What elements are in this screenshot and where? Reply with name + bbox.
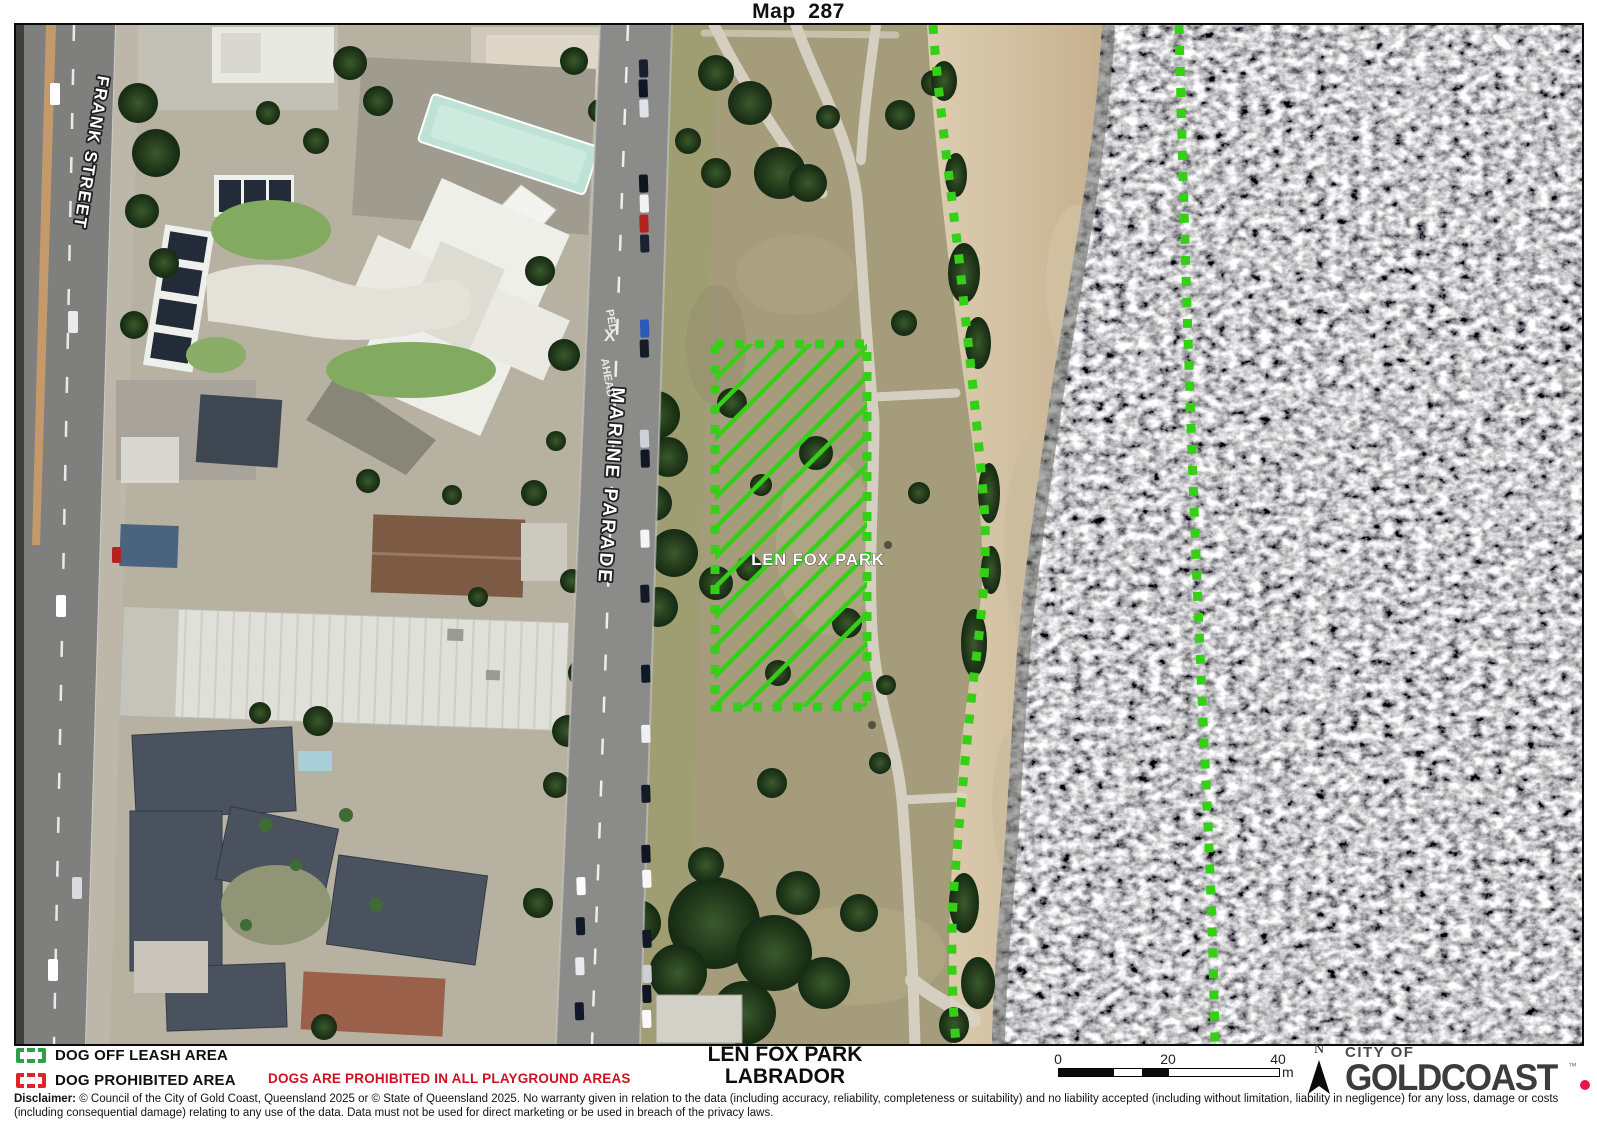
disclaimer: Disclaimer: © Council of the City of Gol… [14, 1092, 1586, 1120]
scale-tick: 20 [1160, 1051, 1176, 1067]
legend: DOG OFF LEASH AREA DOG PROHIBITED AREA [16, 1045, 236, 1090]
logo-red-dot-icon [1580, 1080, 1590, 1090]
legend-item-prohibited: DOG PROHIBITED AREA [16, 1070, 236, 1090]
scale-unit: m [1282, 1064, 1294, 1080]
suburb-name: LABRADOR [600, 1066, 970, 1088]
aerial-map: FRANK STREET MARINE PARADE PED X AHEAD L… [16, 25, 1582, 1044]
park-name: LEN FOX PARK [600, 1044, 970, 1066]
dog-prohibited-swatch-icon [16, 1073, 46, 1088]
logo-trademark: ™ [1568, 1061, 1577, 1071]
scale-bar: 0 20 40 m [1044, 1051, 1294, 1085]
legend-label: DOG PROHIBITED AREA [55, 1072, 236, 1089]
north-label: N [1302, 1042, 1336, 1058]
map-canvas: FRANK STREET MARINE PARADE PED X AHEAD L… [14, 23, 1584, 1046]
legend-item-off-leash: DOG OFF LEASH AREA [16, 1045, 236, 1065]
playground-warning-text: DOGS ARE PROHIBITED IN ALL PLAYGROUND AR… [268, 1071, 631, 1086]
logo-goldcoast: GOLDCOAST [1345, 1061, 1557, 1095]
page-title: Map 287 [0, 0, 1597, 24]
city-of-goldcoast-logo: CITY OF GOLDCOAST™ [1345, 1044, 1595, 1095]
north-arrow-icon [1305, 1058, 1333, 1096]
map-sheet-title: LEN FOX PARK LABRADOR [600, 1044, 970, 1088]
disclaimer-label: Disclaimer: [14, 1093, 76, 1105]
len-fox-park-map-label: LEN FOX PARK [751, 551, 885, 569]
road-marking-x: X [604, 326, 616, 345]
scale-bar-segments [1058, 1068, 1280, 1077]
dog-off-leash-swatch-icon [16, 1048, 46, 1063]
legend-label: DOG OFF LEASH AREA [55, 1047, 228, 1064]
offleash-hatched-area [715, 344, 867, 707]
scale-tick: 0 [1054, 1051, 1062, 1067]
park-shelter [656, 995, 742, 1043]
disclaimer-text: © Council of the City of Gold Coast, Que… [14, 1093, 1558, 1119]
